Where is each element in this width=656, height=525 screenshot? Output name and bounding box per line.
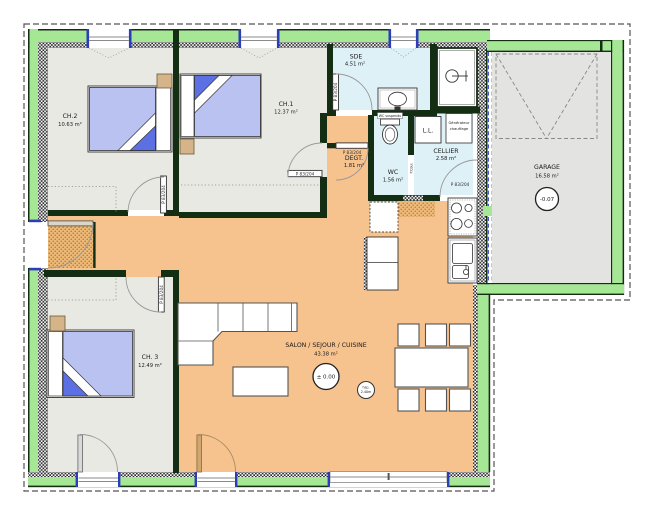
bed-ch3: [47, 330, 134, 398]
garage-level-value: -0.07: [540, 197, 555, 203]
sde-label: SDE: [350, 54, 363, 61]
vanity-basin: [378, 88, 417, 110]
heater-label-1: Générateur: [448, 121, 470, 125]
wc-area: 1.56 m²: [383, 178, 403, 184]
fridge-space: [370, 202, 398, 232]
floor-plan-page: GARAGE 16.58 m² -0.07: [0, 0, 656, 525]
ch2-label: CH.2: [63, 113, 78, 120]
door-tag-ch3: P 83/204: [159, 285, 164, 304]
kitchen-sink: [448, 238, 477, 283]
garage-area: 16.58 m²: [535, 174, 559, 180]
ceiling-height-2: 2.40m: [361, 390, 372, 394]
bed-ch1: [180, 74, 261, 138]
coffee-table: [233, 367, 288, 396]
chair: [426, 389, 447, 411]
salon-level-value: ± 0.00: [317, 375, 336, 381]
nightstand-ch3: [50, 316, 65, 331]
wc-sliding-door-pocket: [403, 196, 423, 201]
dining-set: [395, 324, 471, 411]
chair: [426, 324, 447, 346]
door-tag-cellier: P 83/204: [451, 182, 470, 187]
wc-type-label: WC suspendu: [379, 114, 402, 118]
cellier-label: CELLIER: [433, 148, 459, 155]
nightstand-ch2: [157, 74, 172, 88]
degt-label: DEGT.: [345, 155, 363, 162]
salon-area: 43.38 m²: [314, 352, 338, 358]
ch1-area: 12.37 m²: [274, 110, 298, 116]
chair: [450, 389, 471, 411]
bay-window: [328, 472, 450, 488]
ch1-label: CH.1: [279, 101, 294, 108]
ch3-label: CH. 3: [142, 354, 159, 361]
french-door-salon-leaf: [197, 435, 202, 472]
salon-label: SALON / SEJOUR / CUISINE: [285, 342, 366, 349]
floor-plan-svg: GARAGE 16.58 m² -0.07: [0, 0, 656, 525]
chair: [398, 389, 419, 411]
chair: [450, 324, 471, 346]
ch2-area: 10.63 m²: [58, 122, 82, 128]
wc-label: WC: [388, 169, 398, 176]
ch3-area: 12.49 m²: [138, 363, 162, 369]
sde-area: 4.51 m²: [345, 62, 365, 68]
cooktop: [448, 198, 477, 236]
door-tag-ch1: P 83/204: [296, 171, 315, 176]
washing-machine: L.L.: [415, 117, 441, 144]
washer-label: L.L.: [423, 128, 434, 135]
entrance-door-leaf: [48, 221, 93, 226]
shower: [437, 48, 477, 107]
nightstand-ch1: [180, 139, 194, 154]
chair: [398, 324, 419, 346]
dining-table: [395, 348, 468, 387]
rear-threshold-mat: [396, 202, 435, 218]
degt-area: 1.81 m²: [344, 163, 364, 169]
cellier-area: 2.58 m²: [436, 156, 456, 162]
garage-label: GARAGE: [534, 164, 560, 171]
heating-generator: Générateur chauffage: [446, 114, 472, 144]
room-garage: GARAGE 16.58 m² -0.07: [477, 40, 624, 295]
french-door-ch3-leaf: [78, 435, 83, 472]
door-tag-ch2: P 83/204: [161, 185, 166, 204]
bed-ch2: [88, 86, 172, 152]
door-tag-sde: P 83/204: [333, 82, 338, 101]
kitchen-cabinet: [367, 237, 398, 290]
heater-label-2: chauffage: [450, 127, 469, 131]
sliding-door-tag-wc: P.Coul.: [409, 163, 413, 174]
